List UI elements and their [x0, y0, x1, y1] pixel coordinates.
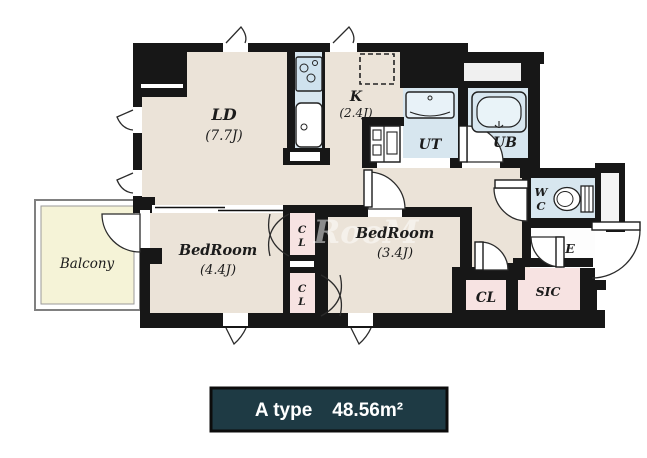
wc-label-line1: W [535, 185, 549, 199]
entrance-door-opening [595, 228, 606, 280]
ub-door-leaf [459, 126, 467, 162]
vanity-sink-icon [406, 92, 454, 118]
ld-label: LD [210, 105, 236, 124]
closet-hall-door-leaf [475, 242, 483, 270]
stove-icon [296, 57, 322, 91]
bedroom-44-label: BedRoom [178, 242, 257, 259]
closet-lower-line2: L [297, 296, 305, 308]
awning-window-icon [226, 27, 246, 43]
bedroom-34-door-leaf [364, 170, 372, 207]
washer-space-icon [370, 126, 400, 162]
bedroom-44-area: (4.4J) [200, 263, 236, 278]
left-window-1 [133, 107, 142, 133]
closet-upper-line1: C [298, 224, 307, 236]
closet-hall-label: CL [476, 290, 496, 306]
kitchen-area: (2.4J) [339, 106, 373, 120]
corridor-door-leaf [495, 180, 528, 188]
closet-divider-slot [290, 261, 314, 267]
awning-window-icon [351, 328, 371, 344]
ub-label: UB [493, 135, 517, 151]
awning-window-icon [117, 173, 133, 193]
counter-end-slot [290, 152, 320, 161]
closet-upper-line2: L [297, 237, 305, 249]
ld-area: (7.7J) [205, 128, 242, 144]
floor-plan-image: RooM LD (7.7J) K (2.4J) UT UB W C BedRoo… [0, 0, 647, 458]
kitchen-label: K [349, 89, 363, 105]
bedroom-34-label: BedRoom [355, 225, 434, 242]
awning-window-icon [117, 110, 133, 130]
ld-floor-upper [187, 52, 295, 97]
meter-box-niche [601, 173, 619, 222]
bedroom-34-area: (3.4J) [377, 246, 413, 261]
top-window-2 [330, 43, 357, 52]
closet-lower-line1: C [298, 283, 307, 295]
toilet-icon [554, 186, 593, 212]
kitchen-sink-icon [296, 103, 322, 147]
wc-label-line2: C [536, 199, 546, 213]
type-badge-box [211, 388, 447, 431]
entrance-label: E [564, 241, 575, 256]
top-window-1 [223, 43, 248, 52]
bathtub-icon [472, 92, 526, 132]
left-window-2 [133, 170, 142, 196]
bottom-window-1 [223, 313, 248, 326]
sliding-door [152, 205, 283, 213]
balcony-door-opening [140, 210, 150, 248]
type-badge-area: 48.56m² [332, 400, 403, 421]
ut-label: UT [419, 137, 443, 153]
type-badge-type: A type [255, 400, 312, 421]
bottom-window-2 [348, 313, 373, 326]
balcony-label: Balcony [59, 256, 115, 272]
ub-top-window [464, 63, 521, 81]
sic-door-leaf [556, 237, 564, 267]
ld-shelf-line [141, 84, 183, 88]
awning-window-icon [226, 328, 246, 344]
entrance-door-leaf [592, 222, 640, 230]
awning-window-icon [333, 27, 354, 43]
sic-label: SIC [536, 284, 561, 299]
type-badge: A type48.56m² [211, 388, 447, 431]
